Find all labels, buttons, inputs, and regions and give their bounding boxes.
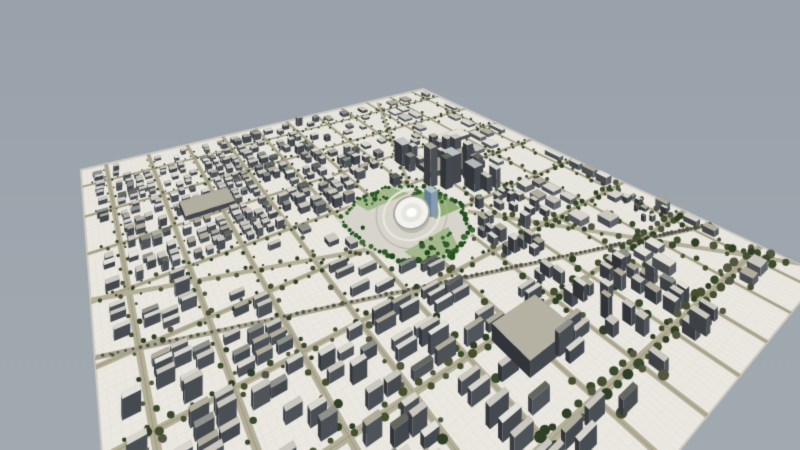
city-model-canvas[interactable] (0, 0, 800, 450)
viewport-root (0, 0, 800, 450)
